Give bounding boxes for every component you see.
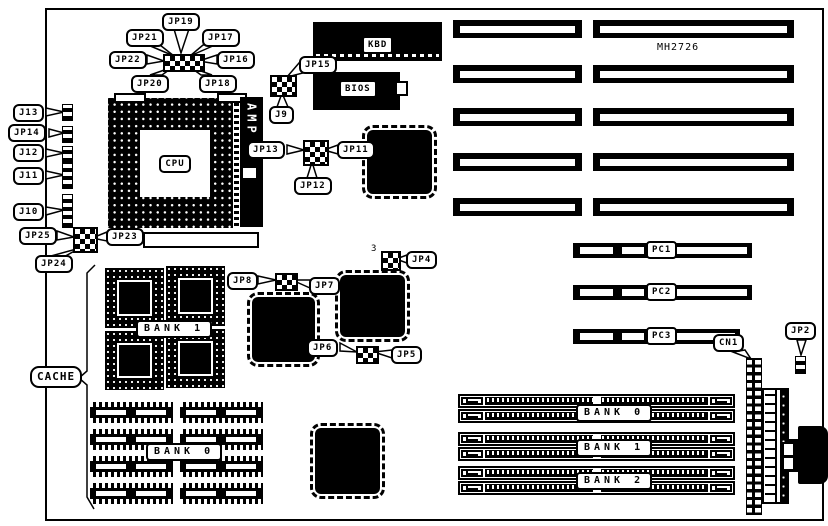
jp25-label: JP25 [19, 227, 57, 245]
pc1-label: PC1 [646, 241, 677, 259]
isa-slot [593, 153, 794, 171]
jp14-pins [62, 126, 73, 143]
bios-label: BIOS [339, 80, 377, 98]
jp16-label: JP16 [217, 51, 255, 69]
j11-label: J11 [13, 167, 44, 185]
qfp-chip [252, 297, 315, 362]
jp21-label: JP21 [126, 29, 164, 47]
isa-slot [453, 108, 582, 126]
jp22-label: JP22 [109, 51, 147, 69]
amp-notch [243, 168, 256, 178]
cache-bank1-label: BANK 1 [136, 320, 212, 338]
qfp-chip [340, 275, 405, 337]
isa-slot [593, 65, 794, 83]
cache-dip-chip [90, 402, 173, 423]
j13-label: J13 [13, 104, 44, 122]
keyboard-din-connector [798, 426, 828, 484]
jp4-jumper-block [381, 251, 401, 271]
jp5-label: JP5 [391, 346, 422, 364]
kbd-label: KBD [362, 36, 393, 54]
jp14-label: JP14 [8, 124, 46, 142]
jp15-j9-jumper-block [270, 75, 297, 97]
amp-label: AMP [245, 103, 259, 137]
simm-latch [461, 450, 483, 458]
pc2-label: PC2 [646, 283, 677, 301]
simm-bank2-label: BANK 2 [576, 472, 652, 490]
jp2-jumper-pins [795, 356, 806, 374]
simm-latch [710, 435, 732, 443]
jp15-label: JP15 [299, 56, 337, 74]
cache-dip-chip [90, 483, 173, 504]
jp23-jp25-jumper-block [73, 227, 98, 253]
j12-label: J12 [13, 144, 44, 162]
jp2-label: JP2 [785, 322, 816, 340]
jp12-label: JP12 [294, 177, 332, 195]
simm-bank0-label: BANK 0 [576, 404, 652, 422]
simm-latch [461, 435, 483, 443]
j10-label: J10 [13, 203, 44, 221]
amp-regulator: AMP [240, 97, 263, 227]
jp7-label: JP7 [309, 277, 340, 295]
motherboard-diagram: CPU AMP MH2726 PC1 PC2 PC3 [0, 0, 828, 526]
jp20-label: JP20 [131, 75, 169, 93]
isa-slot [453, 65, 582, 83]
jp6-label: JP6 [307, 339, 338, 357]
pc3-label: PC3 [646, 327, 677, 345]
cn1-label: CN1 [713, 334, 744, 352]
jp23-label: JP23 [106, 228, 144, 246]
jp4-label: JP4 [406, 251, 437, 269]
simm-latch [710, 469, 732, 477]
simm-latch [461, 484, 483, 492]
cpu-socket-tab [114, 93, 146, 103]
cpu-label: CPU [159, 155, 190, 173]
jp13-label: JP13 [247, 141, 285, 159]
qfp-chip [367, 130, 432, 194]
simm-latch [461, 469, 483, 477]
j13-pins [62, 104, 73, 121]
cpu-socket-center: CPU [140, 130, 210, 197]
jp4-pin3-marker: 3 [371, 244, 377, 254]
jp11-jp13-jumper-block [303, 140, 329, 166]
board-model: MH2726 [657, 42, 699, 53]
simm-latch [710, 397, 732, 405]
jp5-jp6-jumper-block [356, 346, 379, 364]
isa-slot [593, 20, 794, 38]
din-mount-tab [782, 442, 795, 457]
jp19-label: JP19 [162, 13, 200, 31]
simm-latch [461, 397, 483, 405]
cache-plcc-socket [105, 331, 164, 390]
isa-slot [453, 153, 582, 171]
j11-pins [62, 163, 73, 189]
cpu-socket: CPU [108, 98, 233, 228]
isa-slot [593, 198, 794, 216]
isa-slot [593, 108, 794, 126]
jp7-jp8-jumper-block [275, 273, 298, 291]
isa-slot [453, 198, 582, 216]
cache-dip-chip [180, 483, 263, 504]
simm-latch [710, 484, 732, 492]
jp16-jp22-jumper-block [163, 54, 205, 72]
din-mount-tab [782, 456, 795, 471]
j12-pins [62, 146, 73, 163]
j10-pins [62, 194, 73, 228]
pin-ticks [234, 100, 239, 226]
cpu-socket-lever [143, 232, 259, 248]
bios-notch [395, 81, 408, 96]
j9-label: J9 [269, 106, 294, 124]
cache-label: CACHE [30, 366, 82, 388]
jp18-label: JP18 [199, 75, 237, 93]
cache-plcc-socket [166, 266, 225, 326]
cn1-connector [746, 358, 762, 515]
jp24-label: JP24 [35, 255, 73, 273]
simm-bank1-label: BANK 1 [576, 439, 652, 457]
cache-bank0-label: BANK 0 [146, 443, 222, 461]
cache-plcc-socket [105, 268, 164, 328]
jp17-label: JP17 [202, 29, 240, 47]
qfp-chip [315, 428, 380, 494]
jp11-label: JP11 [337, 141, 375, 159]
simm-latch [710, 412, 732, 420]
jp8-label: JP8 [227, 272, 258, 290]
simm-latch [461, 412, 483, 420]
simm-latch [710, 450, 732, 458]
cache-dip-chip [180, 402, 263, 423]
isa-slot [453, 20, 582, 38]
